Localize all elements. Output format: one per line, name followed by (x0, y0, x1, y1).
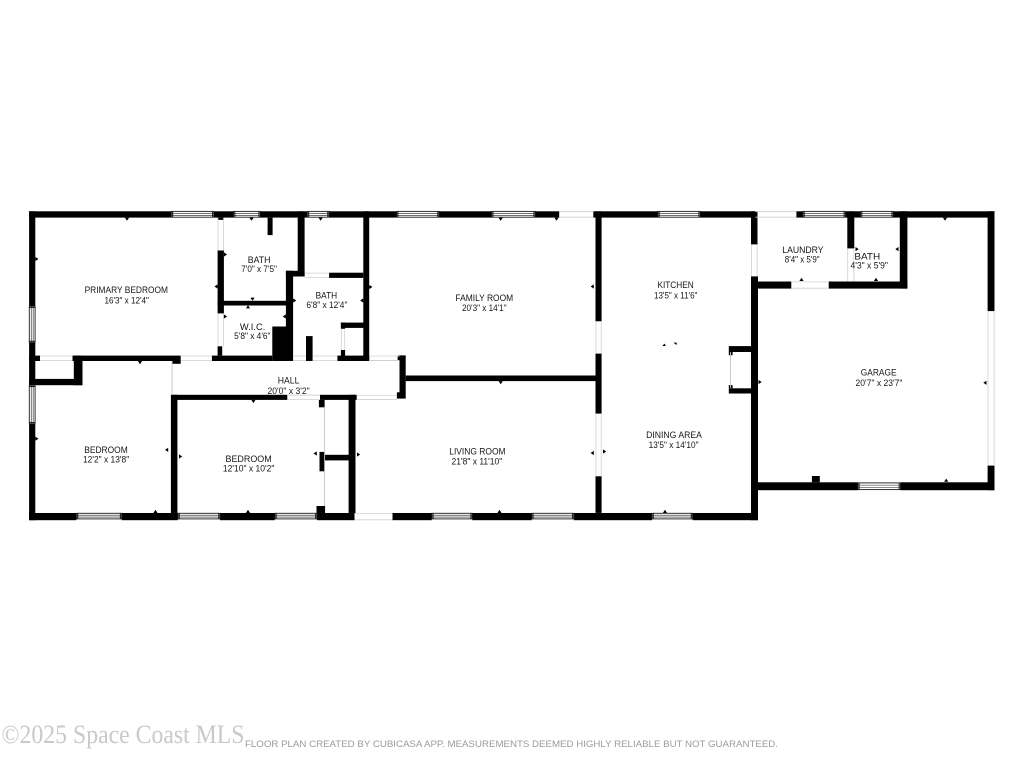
svg-text:©2025 Space Coast MLS: ©2025 Space Coast MLS (2, 719, 245, 749)
svg-text:20'3" x 14'1": 20'3" x 14'1" (462, 303, 507, 314)
svg-text:KITCHEN: KITCHEN (657, 280, 693, 291)
svg-text:8'4" x 5'9": 8'4" x 5'9" (785, 254, 820, 265)
svg-text:GARAGE: GARAGE (861, 368, 897, 379)
svg-text:21'8" x 11'10": 21'8" x 11'10" (452, 457, 503, 468)
svg-text:4'3" x 5'9": 4'3" x 5'9" (851, 260, 888, 271)
svg-text:FLOOR PLAN CREATED BY CUBICASA: FLOOR PLAN CREATED BY CUBICASA APP. MEAS… (245, 739, 778, 750)
svg-text:13'5" x 14'10": 13'5" x 14'10" (649, 440, 699, 451)
svg-text:6'8" x 12'4": 6'8" x 12'4" (306, 300, 347, 311)
svg-text:20'7" x 23'7": 20'7" x 23'7" (856, 378, 903, 389)
svg-text:12'2" x 13'8": 12'2" x 13'8" (83, 454, 129, 465)
svg-text:20'0" x 3'2": 20'0" x 3'2" (268, 386, 310, 397)
svg-text:PRIMARY BEDROOM: PRIMARY BEDROOM (85, 285, 168, 296)
svg-text:13'5" x 11'6": 13'5" x 11'6" (654, 291, 697, 302)
svg-text:16'3" x 12'4": 16'3" x 12'4" (104, 295, 149, 306)
svg-text:5'8" x 4'6": 5'8" x 4'6" (234, 331, 270, 342)
svg-text:12'10" x 10'2": 12'10" x 10'2" (223, 464, 275, 475)
svg-text:7'0" x 7'5": 7'0" x 7'5" (241, 264, 277, 275)
